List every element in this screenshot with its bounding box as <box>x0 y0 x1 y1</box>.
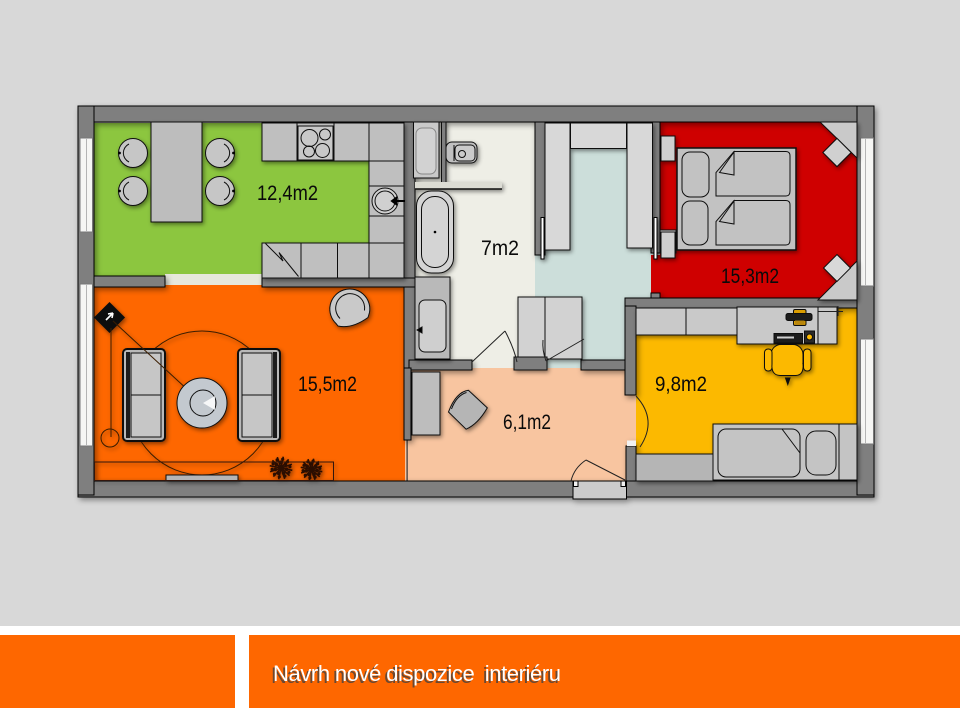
svg-text:6,1m2: 6,1m2 <box>503 411 551 434</box>
svg-text:12,4m2: 12,4m2 <box>257 182 318 205</box>
svg-text:9,8m2: 9,8m2 <box>655 373 707 396</box>
svg-text:15,5m2: 15,5m2 <box>298 373 357 396</box>
svg-text:7m2: 7m2 <box>481 237 519 260</box>
svg-text:15,3m2: 15,3m2 <box>721 265 779 288</box>
